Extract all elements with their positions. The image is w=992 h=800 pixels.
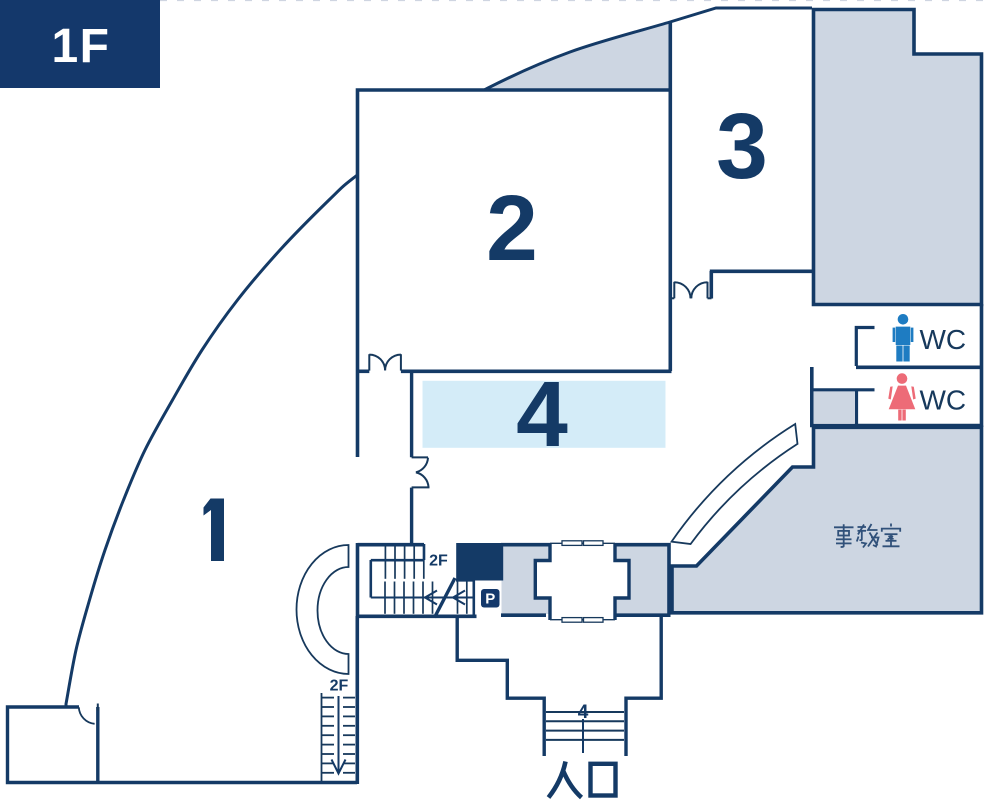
svg-text:2: 2 — [486, 176, 538, 280]
svg-text:P: P — [485, 591, 495, 608]
svg-text:3: 3 — [716, 94, 768, 198]
svg-text:2F: 2F — [330, 678, 349, 695]
svg-text:2F: 2F — [429, 553, 448, 570]
svg-text:4: 4 — [578, 702, 589, 723]
svg-text:1F: 1F — [51, 20, 110, 73]
svg-text:WC: WC — [920, 324, 967, 355]
svg-text:WC: WC — [920, 385, 967, 416]
svg-text:4: 4 — [516, 362, 568, 466]
